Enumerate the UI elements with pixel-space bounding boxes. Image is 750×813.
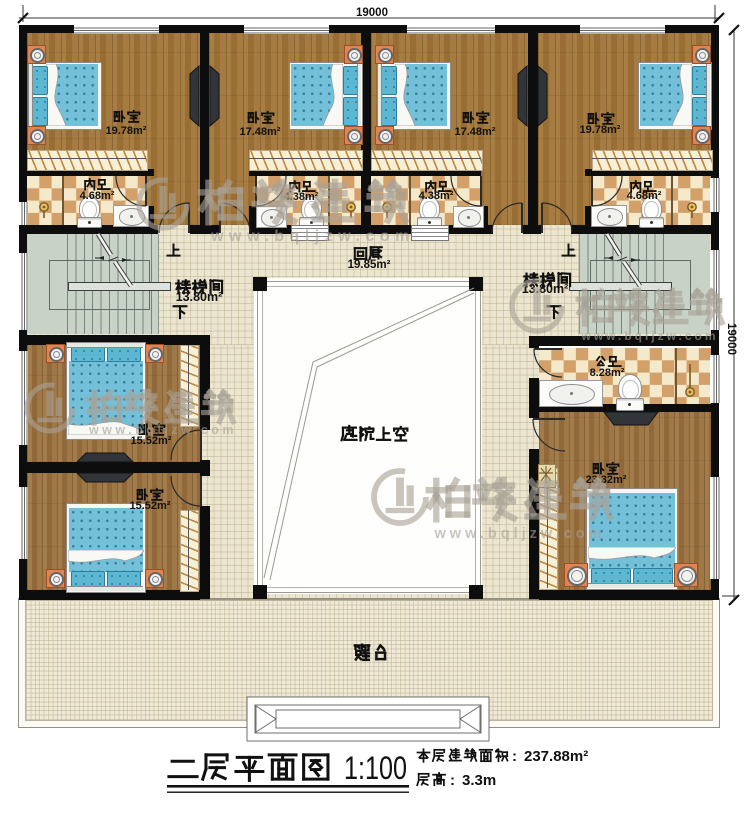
svg-text:4.68m²: 4.68m²	[80, 190, 115, 202]
svg-text:www.bqljzw.com: www.bqljzw.com	[580, 329, 718, 343]
svg-text:17.48m²: 17.48m²	[455, 126, 496, 138]
svg-text::: :	[512, 748, 517, 765]
svg-text:www.bqljzw.com: www.bqljzw.com	[88, 423, 237, 437]
svg-text:3.3m: 3.3m	[462, 772, 496, 789]
svg-text::: :	[450, 772, 455, 789]
svg-text:4.38m²: 4.38m²	[419, 190, 454, 202]
svg-text:19.85m²: 19.85m²	[348, 259, 391, 271]
svg-text:19.78m²: 19.78m²	[580, 124, 621, 136]
svg-text:17.48m²: 17.48m²	[240, 126, 281, 138]
svg-text:237.88m²: 237.88m²	[524, 748, 588, 765]
svg-text:19000: 19000	[356, 7, 388, 19]
svg-text:8.28m²: 8.28m²	[590, 367, 625, 379]
svg-text:www.bqljzw.com: www.bqljzw.com	[434, 526, 606, 542]
svg-text:19.78m²: 19.78m²	[106, 125, 147, 137]
svg-text:www.bqljzw.com: www.bqljzw.com	[210, 228, 415, 245]
svg-text:19000: 19000	[725, 323, 737, 355]
svg-text:1:100: 1:100	[344, 750, 407, 786]
svg-text:13.80m²: 13.80m²	[176, 290, 223, 304]
svg-text:4.68m²: 4.68m²	[627, 190, 662, 202]
svg-text:15.52m²: 15.52m²	[130, 500, 171, 512]
